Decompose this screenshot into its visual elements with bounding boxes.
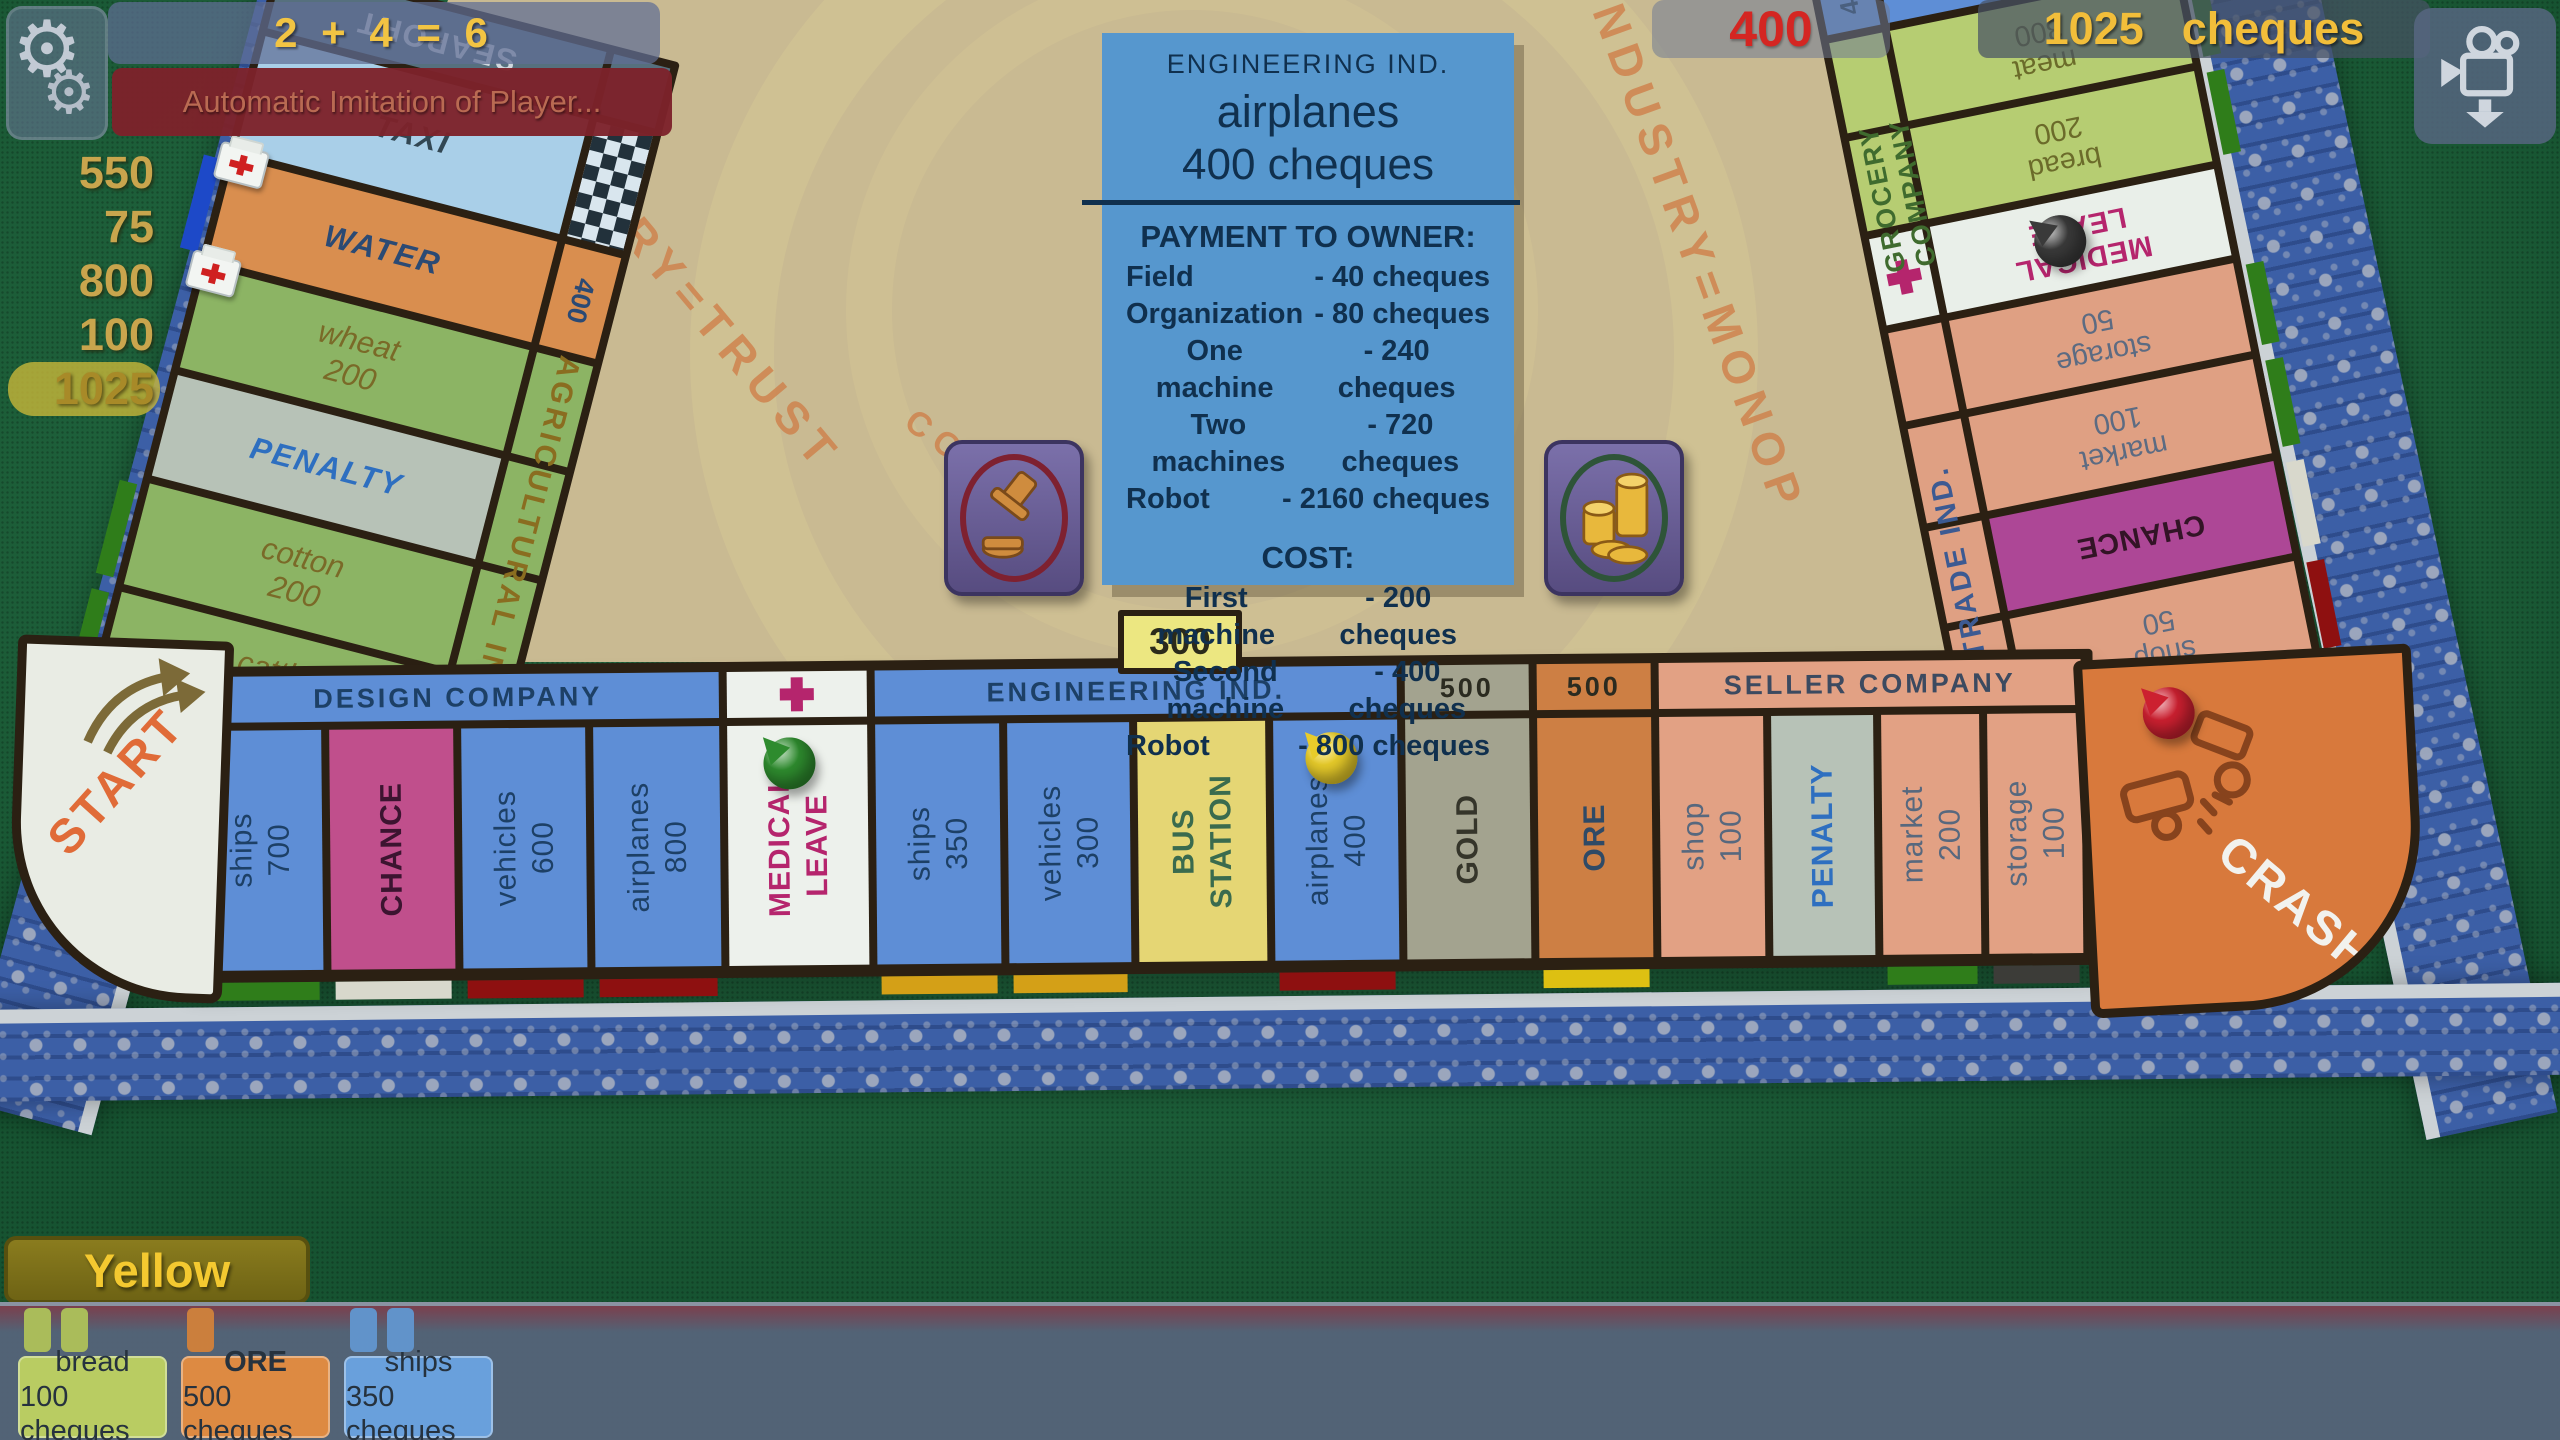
medkit-icon	[212, 141, 270, 190]
card-property-name: airplanes	[1102, 86, 1514, 138]
group-header-design-company: DESIGN COMPANY	[197, 672, 719, 723]
owner-strip	[468, 979, 584, 998]
board-tile-storage-100: storage100	[1987, 713, 2083, 954]
card-row-organization: Organization- 80 cheques	[1126, 296, 1490, 333]
card-row-label: Robot	[1126, 481, 1210, 518]
dice-result-banner: 2 + 4 = 6	[108, 2, 660, 64]
owned-card-ore[interactable]: ORE500 cheques	[181, 1356, 330, 1438]
buy-button[interactable]	[1544, 440, 1684, 596]
tile-group-design-company: DESIGN COMPANYships700CHANCEvehicles600a…	[197, 672, 722, 971]
owner-strip	[1014, 974, 1128, 993]
tile-group-seller-company: SELLER COMPANYshop100PENALTYmarket200sto…	[1659, 659, 2084, 957]
card-row-value: - 200 cheques	[1306, 580, 1490, 654]
card-row-two-machines: Two machines- 720 cheques	[1126, 407, 1490, 481]
board-tile-market-200: market200	[1881, 714, 1981, 955]
owner-strip	[600, 978, 718, 997]
gear-icon-small: ⚙	[42, 58, 96, 128]
card-row-label: One machine	[1126, 333, 1303, 407]
group-header-seller-company: SELLER COMPANY	[1659, 659, 2081, 709]
auction-ring	[960, 454, 1068, 582]
card-row-label: First machine	[1126, 580, 1306, 654]
board-tile-ships-350: ships350	[875, 723, 1001, 964]
card-row-value: - 720 cheques	[1311, 407, 1490, 481]
medical-cross-icon	[780, 677, 814, 711]
property-card: ENGINEERING IND. airplanes 400 cheques P…	[1102, 33, 1514, 585]
card-property-price: 400 cheques	[1102, 140, 1514, 190]
auction-button[interactable]	[944, 440, 1084, 596]
money-value: 550	[8, 146, 160, 200]
owned-card-tab	[24, 1308, 51, 1352]
current-player-button[interactable]: Yellow	[4, 1236, 310, 1304]
rent-amount-pill: 400	[1652, 0, 1890, 58]
card-row-second-machine: Second machine- 400 cheques	[1126, 654, 1490, 728]
money-value: 75	[8, 200, 160, 254]
owned-properties-list: bread100 chequesORE500 chequesships350 c…	[18, 1356, 493, 1438]
card-row-value: - 800 cheques	[1298, 728, 1490, 765]
camera-icon	[2435, 24, 2535, 128]
group-header-500: 500	[1537, 663, 1651, 710]
owned-card-tab	[350, 1308, 377, 1352]
owner-strip	[1543, 969, 1649, 988]
card-row-one-machine: One machine- 240 cheques	[1126, 333, 1490, 407]
card-row-label: Two machines	[1126, 407, 1311, 481]
owned-card-tab	[387, 1308, 414, 1352]
owned-card-tab	[187, 1308, 214, 1352]
card-row-robot: Robot- 2160 cheques	[1126, 481, 1490, 518]
card-row-value: - 2160 cheques	[1282, 481, 1490, 518]
card-row-value: - 240 cheques	[1303, 333, 1490, 407]
card-row-robot: Robot- 800 cheques	[1126, 728, 1490, 765]
card-group-name: ENGINEERING IND.	[1102, 49, 1514, 80]
card-row-value: - 80 cheques	[1314, 296, 1490, 333]
money-value: 100	[8, 308, 160, 362]
board-tile-vehicles-600: vehicles600	[461, 727, 587, 968]
owned-card-price: 500 cheques	[183, 1380, 328, 1440]
tile-group-500: 500ORE	[1537, 663, 1654, 958]
card-row-value: - 400 cheques	[1325, 654, 1490, 728]
owned-card-price: 350 cheques	[346, 1380, 491, 1440]
medkit-icon	[184, 249, 242, 298]
owner-strip	[336, 981, 452, 1000]
board-tile-ore: ORE	[1537, 717, 1653, 958]
card-row-label: Organization	[1126, 296, 1303, 333]
status-banner: Automatic Imitation of Player...	[112, 68, 672, 136]
owned-card-tab	[61, 1308, 88, 1352]
board-tile-penalty: PENALTY	[1771, 715, 1875, 956]
owner-strip	[1993, 965, 2079, 984]
owner-strip	[882, 975, 998, 994]
balance-bar: 1025 cheques	[1978, 0, 2430, 58]
money-value: 800	[8, 254, 160, 308]
owned-card-price: 100 cheques	[20, 1380, 165, 1440]
crash-label: CRASH	[2207, 825, 2385, 986]
board-tile-airplanes-800: airplanes800	[593, 726, 721, 967]
card-row-field: Field- 40 cheques	[1126, 259, 1490, 296]
settings-button[interactable]: ⚙ ⚙	[6, 6, 108, 140]
balance-unit: cheques	[2182, 3, 2365, 55]
card-row-label: Second machine	[1126, 654, 1325, 728]
money-value-current: 1025	[8, 362, 160, 416]
card-cost-rows: First machine- 200 chequesSecond machine…	[1102, 576, 1514, 765]
card-payment-rows: Field- 40 chequesOrganization- 80 cheque…	[1102, 255, 1514, 518]
card-payment-title: PAYMENT TO OWNER:	[1102, 219, 1514, 255]
game-viewport: INDUSTRY=TRUST INDUSTRY=MONOP CO AGRICUL…	[0, 0, 2560, 1440]
card-row-label: Field	[1126, 259, 1194, 296]
owned-card-name: ORE	[224, 1345, 287, 1380]
group-header-medical-cross	[727, 671, 867, 718]
owner-strip	[1280, 972, 1396, 991]
card-cost-title: COST:	[1102, 540, 1514, 576]
card-row-first-machine: First machine- 200 cheques	[1126, 580, 1490, 654]
tile-group-medical: MEDICALLEAVE	[727, 671, 870, 966]
buy-ring	[1560, 454, 1668, 582]
balance-amount: 1025	[2044, 3, 2144, 55]
card-row-label: Robot	[1126, 728, 1210, 765]
board-tile-chance: CHANCE	[329, 729, 455, 970]
owned-card-ships[interactable]: ships350 cheques	[344, 1356, 493, 1438]
owner-strip	[1887, 966, 1977, 985]
card-row-value: - 40 cheques	[1314, 259, 1490, 296]
owned-card-bread[interactable]: bread100 cheques	[18, 1356, 167, 1438]
tile-price-vertical: 400	[559, 276, 600, 327]
money-list: 550758001001025	[8, 146, 160, 416]
board-tile-medical-leave: MEDICALLEAVE	[727, 725, 869, 966]
camera-view-button[interactable]	[2414, 8, 2556, 144]
crash-car-icon	[2102, 699, 2300, 859]
card-divider	[1082, 200, 1520, 205]
board-tile-shop-100: shop100	[1659, 716, 1765, 957]
